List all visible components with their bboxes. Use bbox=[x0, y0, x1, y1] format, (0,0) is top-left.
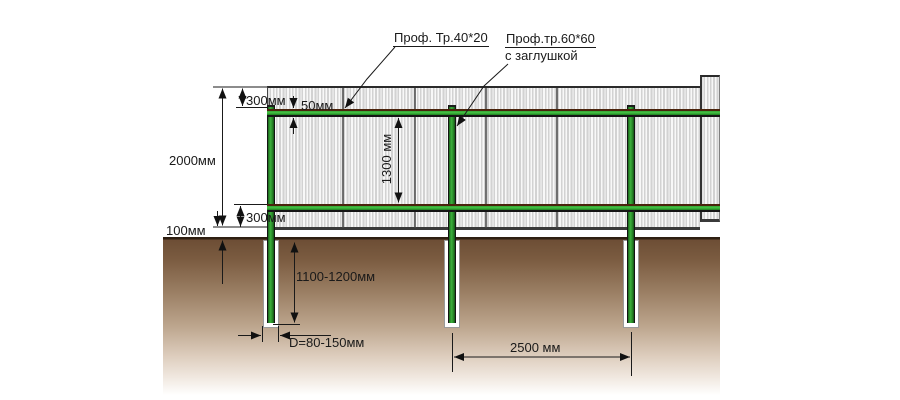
dim-bottom-offset-label: 300мм bbox=[246, 211, 286, 225]
post-profile-label: Проф.тр.60*60 bbox=[505, 32, 596, 48]
fence-post-3 bbox=[627, 105, 635, 323]
top-rail bbox=[267, 109, 720, 117]
dim-rail-height-label: 50мм bbox=[301, 99, 333, 113]
corrugated-sheet-end-panel bbox=[700, 75, 720, 222]
rail-profile-label: Проф. Тр.40*20 bbox=[393, 31, 489, 47]
dim-hole-diameter-label: D=80-150мм bbox=[289, 336, 364, 350]
dim-rail-spacing-label: 1300 мм bbox=[380, 134, 394, 184]
fence-installation-diagram: Проф. Тр.40*20 Проф.тр.60*60 с заглушкой… bbox=[0, 0, 900, 400]
dim-post-spacing-label: 2500 мм bbox=[510, 341, 560, 355]
fence-post-2 bbox=[448, 105, 456, 323]
dim-top-offset-label: 300мм bbox=[246, 94, 286, 108]
dim-fence-height-label: 2000мм bbox=[169, 154, 216, 168]
post-cap-note: с заглушкой bbox=[505, 49, 578, 63]
bottom-rail bbox=[267, 204, 720, 212]
dim-post-depth-label: 1100-1200мм bbox=[296, 270, 375, 284]
dim-ground-gap-label: 100мм bbox=[166, 224, 206, 238]
